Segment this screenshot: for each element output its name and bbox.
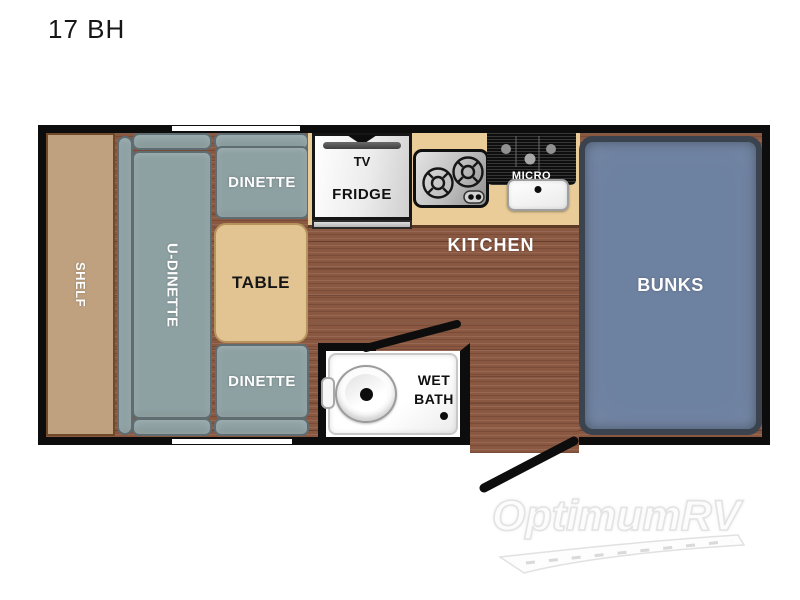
dinette-seat-top: DINETTE (215, 146, 309, 219)
u-dinette-bench: U-DINETTE (132, 151, 212, 419)
u-dinette-backrest (117, 136, 133, 435)
toilet-tank-icon (321, 377, 335, 409)
u-dinette-label: U-DINETTE (164, 243, 181, 328)
tv-icon (323, 142, 401, 149)
toilet-icon (335, 365, 397, 423)
dinette-backrest-bottom-left (132, 418, 212, 436)
dinette-seat-bottom: DINETTE (215, 344, 309, 419)
watermark: OptimumRV (492, 492, 770, 577)
fridge-label: FRIDGE (315, 186, 409, 203)
floorplan: SHELF U-DINETTE DINETTE TABLE DINETTE TV… (38, 125, 770, 445)
drain-icon (440, 412, 448, 420)
table-label: TABLE (232, 273, 290, 293)
entry-door-opening (470, 428, 579, 453)
window-bottom (172, 439, 292, 444)
page: { "title": "17 BH", "plan": { "shelf": "… (0, 0, 800, 600)
microwave: MICRO (487, 133, 576, 185)
wet-bath-wall (318, 343, 376, 351)
window-top (172, 126, 300, 131)
page-title: 17 BH (48, 14, 125, 45)
dinette-top-label: DINETTE (228, 174, 296, 191)
dinette-table: TABLE (214, 223, 308, 343)
kitchen-label: KITCHEN (406, 235, 576, 256)
tv-label: TV (315, 154, 409, 169)
tv-fridge-front-panel (312, 220, 412, 229)
bunks-label: BUNKS (637, 275, 704, 296)
bunks-bed: BUNKS (579, 136, 762, 435)
stove-cooktop (413, 149, 489, 208)
wet-bath-label: WET BATH (402, 371, 466, 409)
shelf-area: SHELF (46, 133, 115, 436)
stove-burner-icon (416, 152, 486, 205)
sink-faucet-icon (535, 186, 542, 193)
shelf-label: SHELF (73, 262, 88, 307)
tv-fridge-unit: TV FRIDGE (312, 133, 412, 220)
watermark-brand: OptimumRV (492, 492, 770, 541)
kitchen-sink (507, 179, 569, 211)
dinette-backrest-bottom-right (214, 418, 309, 436)
wet-bath: WET BATH (318, 343, 470, 445)
dinette-bottom-label: DINETTE (228, 373, 296, 390)
dinette-backrest-top-left (132, 133, 212, 150)
